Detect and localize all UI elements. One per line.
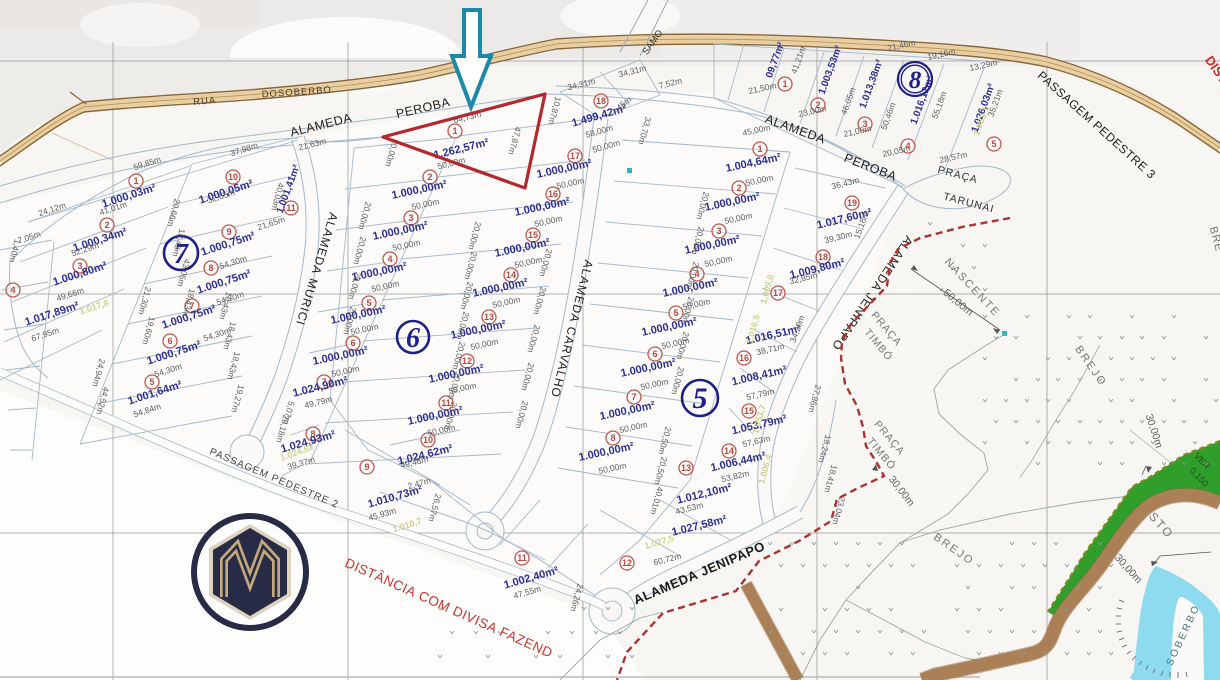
svg-text:17: 17 (773, 288, 783, 298)
svg-text:4: 4 (10, 285, 15, 295)
svg-text:7: 7 (631, 392, 636, 402)
svg-text:1: 1 (782, 79, 787, 89)
svg-text:5: 5 (673, 308, 678, 318)
svg-text:19: 19 (847, 198, 857, 208)
svg-text:18: 18 (596, 96, 606, 106)
svg-text:9: 9 (226, 227, 231, 237)
svg-text:11: 11 (517, 553, 527, 563)
svg-text:15: 15 (744, 406, 754, 416)
svg-text:5: 5 (149, 377, 154, 387)
svg-text:8: 8 (208, 263, 213, 273)
svg-text:6: 6 (406, 323, 420, 354)
svg-text:3: 3 (716, 226, 721, 236)
svg-text:9: 9 (364, 462, 369, 472)
svg-text:5: 5 (693, 382, 708, 415)
svg-text:10: 10 (228, 172, 238, 182)
svg-text:2: 2 (736, 183, 741, 193)
svg-text:12: 12 (622, 558, 632, 568)
svg-text:5: 5 (991, 139, 996, 149)
svg-text:6: 6 (652, 349, 657, 359)
svg-text:8: 8 (610, 433, 615, 443)
svg-text:1: 1 (133, 176, 138, 186)
svg-text:RUA: RUA (193, 95, 217, 108)
svg-text:14: 14 (724, 446, 734, 456)
svg-text:2: 2 (104, 220, 109, 230)
svg-text:1: 1 (452, 126, 457, 136)
svg-text:16: 16 (739, 353, 749, 363)
svg-text:13: 13 (681, 463, 691, 473)
svg-text:6: 6 (167, 336, 172, 346)
svg-text:1: 1 (757, 144, 762, 154)
